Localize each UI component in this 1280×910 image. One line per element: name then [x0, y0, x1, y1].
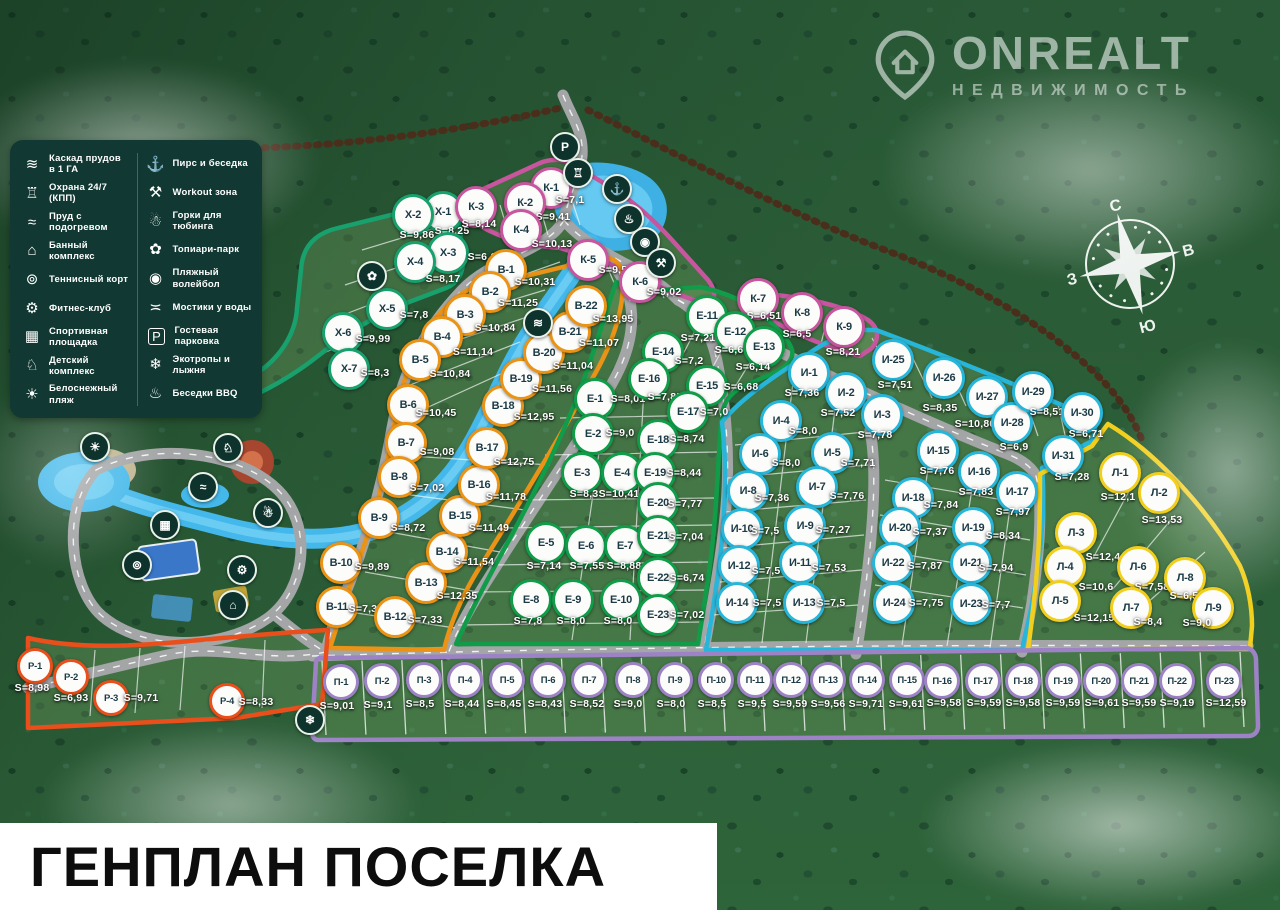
plot-area-И-16: S=7,83 [959, 486, 994, 498]
plot-area-Е-8: S=7,8 [514, 615, 543, 627]
plot-area-И-24: S=7,75 [909, 597, 944, 609]
legend-item-label: Спортивная площадка [49, 326, 129, 348]
plot-area-Л-9: S=9,0 [1183, 617, 1212, 629]
legend-item-label: Мостики у воды [173, 302, 252, 313]
plot-area-П-22: S=9,19 [1160, 697, 1195, 709]
bbq-gazebos-icon: ♨ [146, 386, 166, 401]
plot-area-И-10: S=7,5 [751, 525, 780, 537]
plot-area-Х-4: S=8,17 [426, 273, 461, 285]
legend-panel: ≋Каскад прудов в 1 ГА♖Охрана 24/7 (КПП)≈… [10, 140, 262, 418]
plot-area-И-18: S=7,84 [924, 499, 959, 511]
legend-item-label: Топиари-парк [173, 244, 240, 255]
legend-item-label: Детский комплекс [49, 355, 129, 377]
plot-area-К-2: S=9,41 [536, 211, 571, 223]
beach-marker: ☀ [80, 432, 110, 462]
plot-area-Р-1: S=8,98 [15, 682, 50, 694]
fitness-marker: ⚙ [227, 555, 257, 585]
plot-П-9[interactable]: П-9 [657, 662, 693, 698]
legend-item-label: Экотропы и лыжня [173, 354, 253, 376]
plot-area-И-11: S=7,53 [812, 562, 847, 574]
legend-item-sauna-complex: ⌂Банный комплекс [22, 240, 129, 262]
title-strip: ГЕНПЛАН ПОСЕЛКА [0, 823, 717, 910]
cascade-marker: ≋ [523, 308, 553, 338]
legend-item-label: Горки для тюбинга [173, 210, 253, 232]
legend-column-left: ≋Каскад прудов в 1 ГА♖Охрана 24/7 (КПП)≈… [22, 153, 138, 406]
plot-area-В-8: S=7,02 [410, 482, 445, 494]
security-24-7-icon: ♖ [22, 186, 42, 201]
sports-ground-marker: ▦ [150, 510, 180, 540]
plot-area-П-19: S=9,59 [1046, 697, 1081, 709]
plot-area-Л-1: S=12,1 [1101, 491, 1136, 503]
plot-area-Е-7: S=8,88 [607, 560, 642, 572]
plot-area-К-1: S=7,1 [556, 194, 585, 206]
plot-area-И-20: S=7,37 [913, 526, 948, 538]
plot-area-В-5: S=10,84 [430, 368, 471, 380]
plot-area-П-9: S=8,0 [657, 698, 686, 710]
plot-Р-1[interactable]: Р-1 [17, 648, 53, 684]
plot-area-П-10: S=8,5 [698, 698, 727, 710]
plot-area-В-16: S=11,78 [486, 491, 526, 503]
plot-area-П-15: S=9,61 [889, 698, 924, 710]
plot-П-23[interactable]: П-23 [1206, 663, 1242, 699]
plot-area-П-20: S=9,61 [1085, 697, 1120, 709]
plot-П-2[interactable]: П-2 [364, 663, 400, 699]
plot-И-25[interactable]: И-25 [872, 339, 914, 381]
plot-area-В-18: S=12,95 [514, 411, 555, 423]
plot-area-П-16: S=9,58 [927, 697, 962, 709]
legend-item-label: Пирс и беседка [173, 158, 248, 169]
plot-area-К-6: S=9,02 [647, 286, 682, 298]
plot-area-К-4: S=10,13 [532, 238, 573, 250]
plot-П-5[interactable]: П-5 [489, 662, 525, 698]
cascade-ponds-icon: ≋ [22, 157, 42, 172]
tubing-hills-icon: ☃ [146, 214, 166, 229]
plot-area-В-3: S=10,84 [475, 322, 516, 334]
legend-item-label: Охрана 24/7 (КПП) [49, 182, 129, 204]
genplan-poster: С В Ю З Х-1S=8,25Х-2S=9,86Х-3S=6,1Х-4S=8… [0, 0, 1280, 910]
plot-П-19[interactable]: П-19 [1045, 663, 1081, 699]
plot-area-И-22: S=7,87 [908, 560, 943, 572]
plot-area-Х-5: S=7,8 [400, 309, 429, 321]
legend-item-tubing-hills: ☃Горки для тюбинга [146, 210, 253, 232]
plot-area-И-19: S=8,34 [986, 530, 1021, 542]
plot-area-Е-17: S=7,0 [700, 406, 729, 418]
plot-area-В-13: S=12,35 [437, 590, 478, 602]
plot-area-И-28: S=6,9 [1000, 441, 1029, 453]
plot-П-8[interactable]: П-8 [615, 662, 651, 698]
legend-item-beach-volleyball: ◉Пляжный волейбол [146, 267, 253, 289]
legend-item-fitness-club: ⚙Фитнес-клуб [22, 297, 129, 319]
plot-area-Х-7: S=8,3 [361, 367, 390, 379]
plot-area-Е-15: S=6,68 [724, 381, 759, 393]
plot-area-В-4: S=11,14 [453, 346, 493, 358]
sauna-complex-icon: ⌂ [22, 243, 42, 258]
plot-П-6[interactable]: П-6 [530, 662, 566, 698]
plot-area-И-25: S=7,51 [878, 379, 913, 391]
heated-pond-marker: ≈ [188, 472, 218, 502]
plot-П-16[interactable]: П-16 [924, 663, 960, 699]
plot-area-К-9: S=8,21 [826, 346, 861, 358]
plot-area-П-23: S=12,59 [1206, 697, 1247, 709]
sauna-marker: ⌂ [218, 590, 248, 620]
legend-item-cascade-ponds: ≋Каскад прудов в 1 ГА [22, 153, 129, 175]
plot-area-В-6: S=10,45 [416, 407, 457, 419]
plot-area-И-4: S=8,0 [789, 425, 818, 437]
plot-area-К-3: S=8,14 [462, 218, 497, 230]
plot-area-П-7: S=8,52 [570, 698, 605, 710]
plot-area-В-9: S=8,72 [391, 522, 426, 534]
plot-area-Е-12: S=6,6 [715, 344, 744, 356]
plot-П-11[interactable]: П-11 [737, 662, 773, 698]
plot-area-В-7: S=9,08 [420, 446, 455, 458]
pier-gazebo-icon: ⚓ [146, 157, 166, 172]
plot-area-П-1: S=9,01 [320, 700, 355, 712]
plot-area-П-5: S=8,45 [487, 698, 522, 710]
legend-item-eco-trails-ski: ❄Экотропы и лыжня [146, 354, 253, 376]
plot-area-Р-3: S=9,71 [124, 692, 159, 704]
legend-item-pier-gazebo: ⚓Пирс и беседка [146, 153, 253, 175]
legend-item-kids-complex: ♘Детский комплекс [22, 355, 129, 377]
plot-area-П-4: S=8,44 [445, 698, 480, 710]
plot-area-В-19: S=11,56 [532, 383, 572, 395]
plot-П-4[interactable]: П-4 [447, 662, 483, 698]
plot-Л-1[interactable]: Л-1 [1099, 452, 1141, 494]
plot-area-П-2: S=9,1 [364, 699, 393, 711]
legend-item-label: Теннисный корт [49, 274, 128, 285]
legend-item-label: Пляжный волейбол [173, 267, 253, 289]
plot-area-И-17: S=7,97 [996, 506, 1031, 518]
plot-Л-2[interactable]: Л-2 [1138, 472, 1180, 514]
tennis-court-icon: ⊚ [22, 272, 42, 287]
plot-area-Е-2: S=9,0 [606, 427, 635, 439]
logo-subtitle: НЕДВИЖИМОСТЬ [952, 82, 1195, 100]
plot-area-Е-10: S=8,0 [604, 615, 633, 627]
plot-area-Е-4: S=10,41 [599, 488, 640, 500]
sports-ground-icon: ▦ [22, 329, 42, 344]
plot-area-П-12: S=9,59 [773, 698, 808, 710]
legend-item-label: Белоснежный пляж [49, 383, 129, 405]
plot-area-Е-3: S=8,3 [570, 488, 599, 500]
plot-area-И-9: S=7,27 [816, 524, 851, 536]
legend-item-topiary-park: ✿Топиари-парк [146, 239, 253, 261]
plot-area-Р-4: S=8,33 [239, 696, 274, 708]
topiary-park-icon: ✿ [146, 242, 166, 257]
fitness-club-icon: ⚙ [22, 301, 42, 316]
ski-trail-marker: ❄ [295, 705, 325, 735]
plot-П-14[interactable]: П-14 [849, 662, 885, 698]
plot-area-И-31: S=7,28 [1055, 471, 1090, 483]
legend-item-label: Беседки BBQ [173, 388, 238, 399]
plot-П-21[interactable]: П-21 [1121, 663, 1157, 699]
plot-area-В-10: S=9,89 [355, 561, 390, 573]
plot-area-В-22: S=13,95 [593, 313, 634, 325]
plot-area-Е-21: S=7,04 [669, 531, 704, 543]
legend-item-white-beach: ☀Белоснежный пляж [22, 383, 129, 405]
kids-complex-marker: ♘ [213, 433, 243, 463]
onrealt-logo: ONREALT НЕДВИЖИМОСТЬ [872, 28, 1195, 102]
plot-area-В-17: S=12,75 [494, 456, 535, 468]
plot-П-15[interactable]: П-15 [889, 662, 925, 698]
plot-И-8[interactable]: И-8 [727, 470, 769, 512]
plot-area-В-1: S=10,31 [515, 276, 556, 288]
plot-area-И-23: S=7,7 [982, 599, 1011, 611]
legend-item-label: Workout зона [173, 187, 238, 198]
plot-area-И-12: S=7,5 [752, 565, 781, 577]
plot-area-П-6: S=8,43 [528, 698, 563, 710]
security-marker: ♖ [563, 158, 593, 188]
plot-area-Е-13: S=6,14 [736, 361, 771, 373]
legend-item-sports-ground: ▦Спортивная площадка [22, 326, 129, 348]
plot-area-И-21: S=7,94 [979, 562, 1014, 574]
plot-area-Е-9: S=8,0 [557, 615, 586, 627]
legend-item-guest-parking: PГостевая парковка [146, 325, 253, 347]
plot-area-Х-6: S=9,99 [356, 333, 391, 345]
topiary-marker: ✿ [357, 261, 387, 291]
plot-П-1[interactable]: П-1 [323, 664, 359, 700]
plot-area-Л-7: S=8,4 [1134, 616, 1163, 628]
plot-П-17[interactable]: П-17 [965, 663, 1001, 699]
legend-item-label: Пруд с подогревом [49, 211, 129, 233]
plot-area-П-21: S=9,59 [1122, 697, 1157, 709]
water-bridges-icon: ≍ [146, 300, 166, 315]
plot-П-10[interactable]: П-10 [698, 662, 734, 698]
plot-П-18[interactable]: П-18 [1005, 663, 1041, 699]
plot-П-12[interactable]: П-12 [773, 662, 809, 698]
plot-П-13[interactable]: П-13 [810, 662, 846, 698]
page-title: ГЕНПЛАН ПОСЕЛКА [0, 834, 606, 899]
legend-column-right: ⚓Пирс и беседка⚒Workout зона☃Горки для т… [146, 153, 253, 406]
guest-parking-icon: P [148, 328, 165, 345]
kids-complex-icon: ♘ [22, 358, 42, 373]
plot-area-В-2: S=11,25 [498, 297, 538, 309]
plot-area-П-3: S=8,5 [406, 698, 435, 710]
plot-area-П-18: S=9,58 [1006, 697, 1041, 709]
plot-area-Е-22: S=6,74 [670, 572, 705, 584]
legend-item-security-24-7: ♖Охрана 24/7 (КПП) [22, 182, 129, 204]
plot-area-Е-23: S=7,02 [670, 609, 705, 621]
plot-area-И-14: S=7,5 [753, 597, 782, 609]
workout-marker: ⚒ [646, 248, 676, 278]
plot-area-И-6: S=8,0 [772, 457, 801, 469]
plot-П-22[interactable]: П-22 [1159, 663, 1195, 699]
plot-area-И-3: S=7,78 [858, 429, 893, 441]
plot-Р-2[interactable]: Р-2 [53, 659, 89, 695]
plot-К-9[interactable]: К-9 [823, 306, 865, 348]
legend-item-label: Фитнес-клуб [49, 303, 111, 314]
plot-area-И-26: S=8,35 [923, 402, 958, 414]
plot-area-В-15: S=11,49 [469, 522, 509, 534]
plot-area-К-8: S=6,5 [783, 328, 812, 340]
plot-area-Е-19: S=8,44 [667, 467, 702, 479]
plot-area-Е-20: S=7,77 [668, 498, 703, 510]
legend-item-water-bridges: ≍Мостики у воды [146, 296, 253, 318]
plot-П-7[interactable]: П-7 [571, 662, 607, 698]
plot-area-И-13: S=7,5 [817, 597, 846, 609]
plot-П-3[interactable]: П-3 [406, 662, 442, 698]
plot-area-Е-6: S=7,55 [570, 560, 605, 572]
plot-area-В-21: S=11,07 [579, 337, 619, 349]
plot-area-В-14: S=11,54 [454, 556, 494, 568]
plot-area-В-12: S=7,33 [408, 614, 443, 626]
plot-area-П-8: S=9,0 [614, 698, 643, 710]
plot-area-Л-5: S=12,15 [1074, 612, 1115, 624]
plot-area-И-7: S=7,76 [830, 490, 865, 502]
legend-item-bbq-gazebos: ♨Беседки BBQ [146, 383, 253, 405]
plot-area-П-14: S=9,71 [849, 698, 884, 710]
eco-trails-ski-icon: ❄ [146, 357, 166, 372]
plot-area-П-13: S=9,56 [811, 698, 846, 710]
plot-area-Л-4: S=10,6 [1079, 581, 1114, 593]
plot-В-6[interactable]: В-6 [387, 384, 429, 426]
legend-item-workout-zone: ⚒Workout зона [146, 182, 253, 204]
plot-area-И-1: S=7,36 [785, 387, 820, 399]
plot-area-Е-18: S=8,74 [670, 433, 705, 445]
plot-area-И-8: S=7,36 [755, 492, 790, 504]
plot-area-Е-11: S=7,21 [681, 332, 716, 344]
tubing-marker: ☃ [253, 498, 283, 528]
legend-item-label: Гостевая парковка [175, 325, 253, 347]
legend-item-label: Каскад прудов в 1 ГА [49, 153, 129, 175]
logo-title: ONREALT [952, 30, 1192, 76]
plot-area-П-11: S=9,5 [738, 698, 767, 710]
beach-volleyball-icon: ◉ [146, 271, 166, 286]
heated-pond-icon: ≈ [22, 215, 42, 230]
pier-marker: ⚓ [602, 174, 632, 204]
plot-area-И-2: S=7,52 [821, 407, 856, 419]
plot-П-20[interactable]: П-20 [1083, 663, 1119, 699]
workout-zone-icon: ⚒ [146, 185, 166, 200]
plot-И-26[interactable]: И-26 [923, 357, 965, 399]
plot-area-Р-2: S=6,93 [54, 692, 89, 704]
tennis-marker: ⊚ [122, 550, 152, 580]
plot-area-В-20: S=11,04 [553, 360, 593, 372]
plot-area-И-15: S=7,76 [920, 465, 955, 477]
plot-area-Е-5: S=7,14 [527, 560, 562, 572]
plot-Е-5[interactable]: Е-5 [525, 522, 567, 564]
plot-area-Х-2: S=9,86 [400, 229, 435, 241]
white-beach-icon: ☀ [22, 387, 42, 402]
plot-markers-layer: Х-1S=8,25Х-2S=9,86Х-3S=6,1Х-4S=8,17Х-5S=… [0, 0, 1280, 910]
plot-area-П-17: S=9,59 [967, 697, 1002, 709]
logo-house-pin-icon [872, 28, 938, 102]
plot-area-И-5: S=7,71 [841, 457, 876, 469]
legend-item-tennis-court: ⊚Теннисный корт [22, 269, 129, 291]
legend-item-heated-pond: ≈Пруд с подогревом [22, 211, 129, 233]
plot-area-Л-2: S=13,53 [1142, 514, 1183, 526]
plot-area-И-29: S=8,51 [1030, 406, 1065, 418]
legend-item-label: Банный комплекс [49, 240, 129, 262]
plot-area-И-27: S=10,86 [955, 418, 996, 430]
